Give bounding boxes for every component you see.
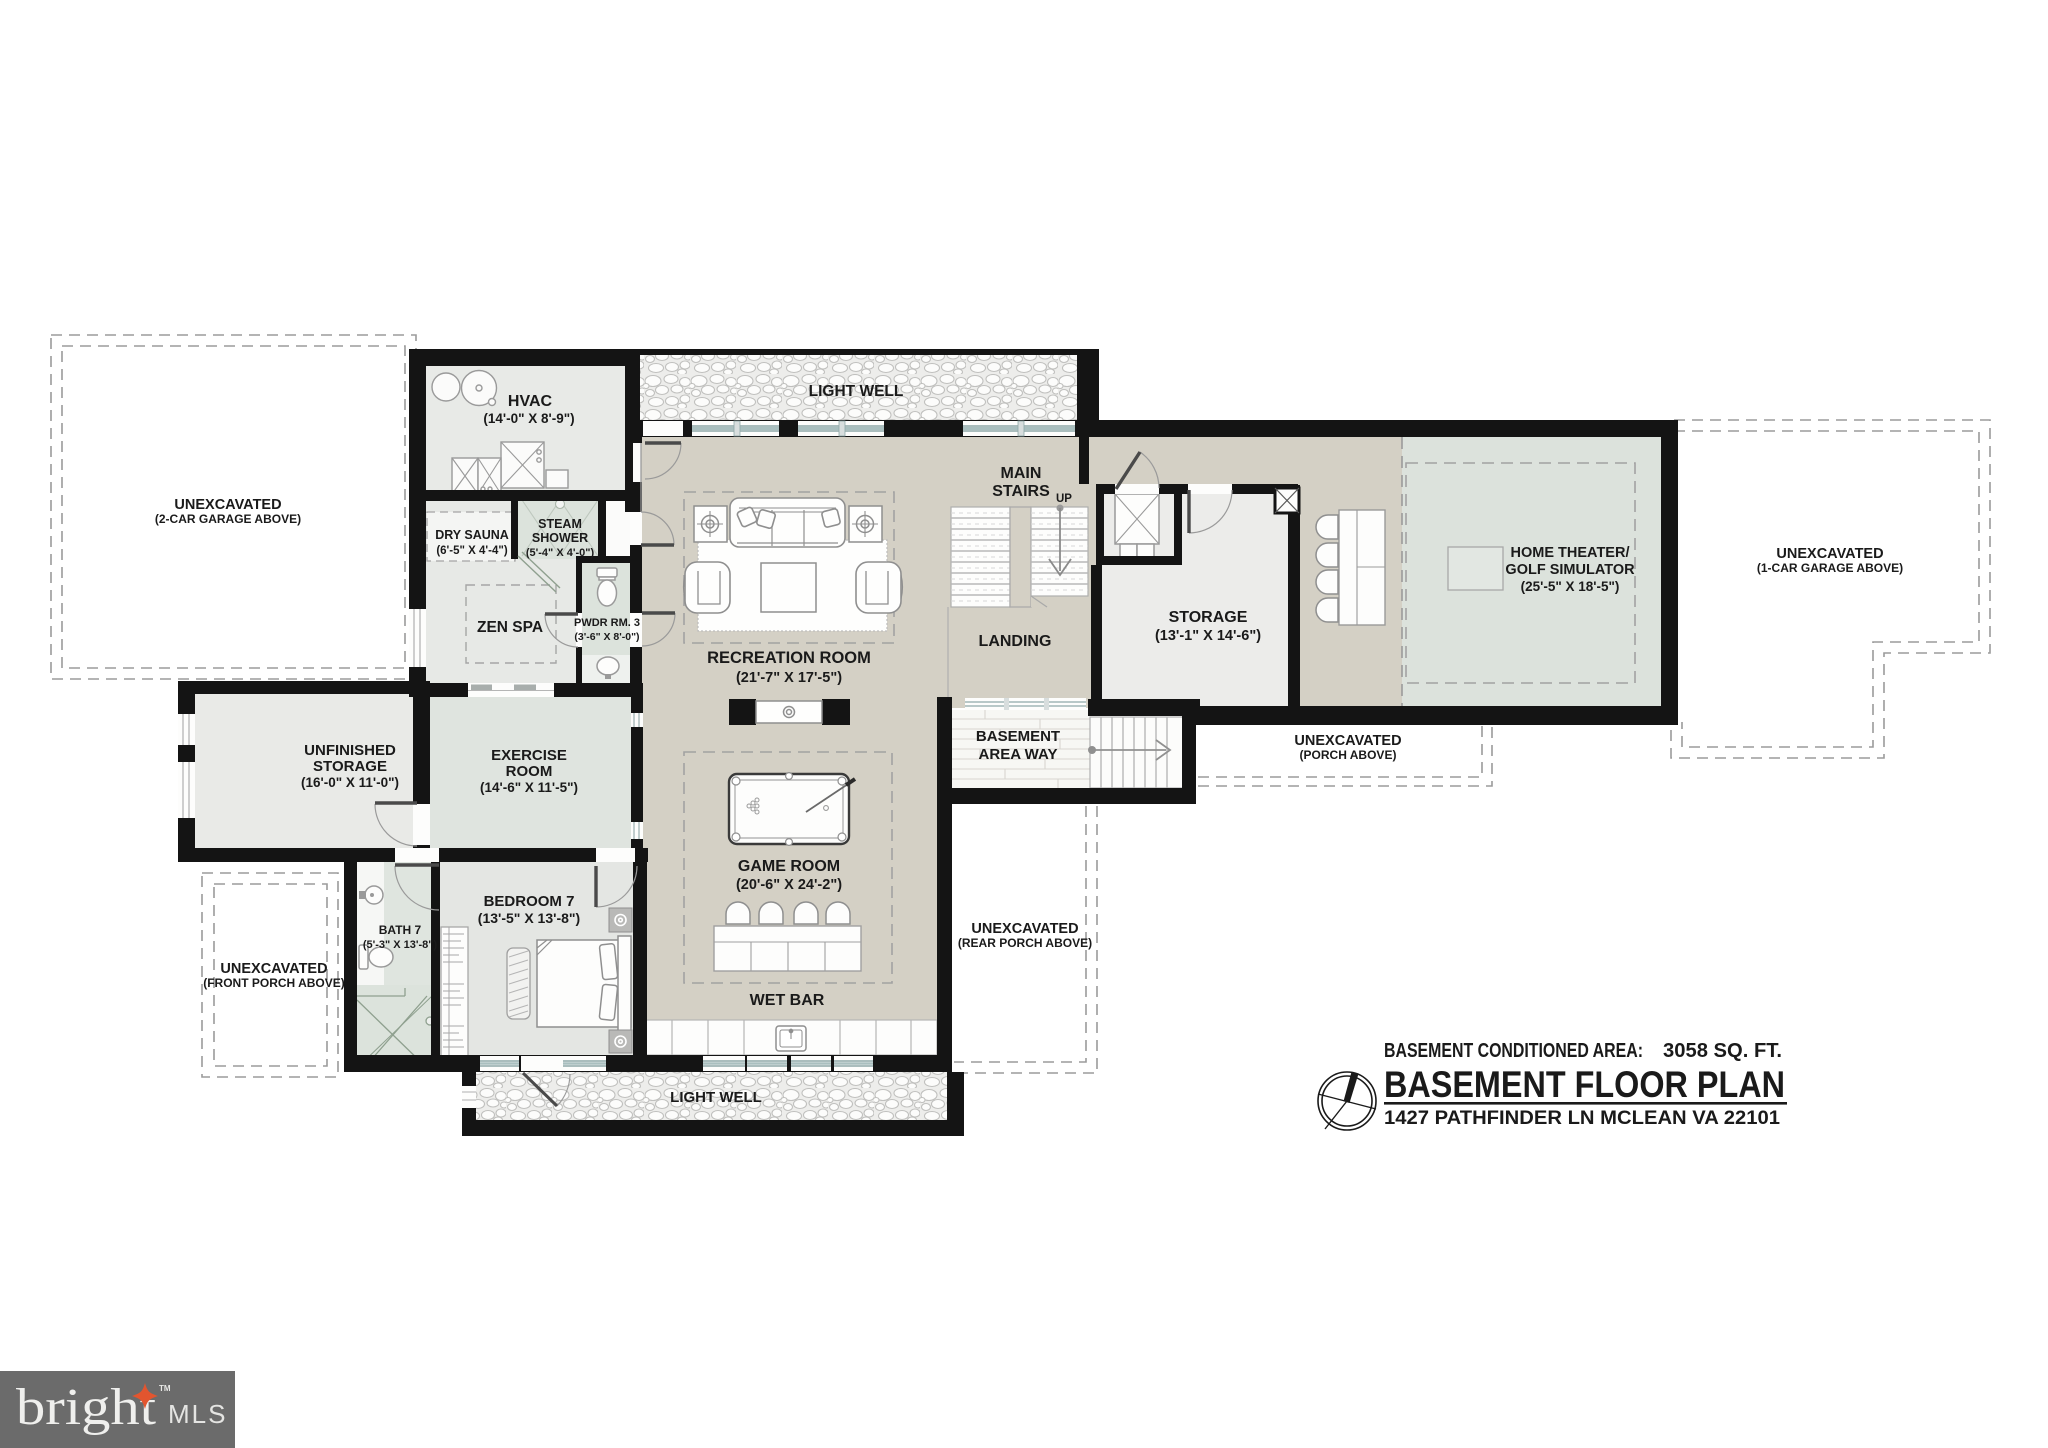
- svg-text:ZEN SPA: ZEN SPA: [477, 619, 543, 636]
- svg-text:UNEXCAVATED: UNEXCAVATED: [1776, 546, 1883, 562]
- svg-text:STEAM: STEAM: [538, 517, 582, 531]
- svg-text:(21'-7" X 17'-5"): (21'-7" X 17'-5"): [736, 670, 842, 686]
- svg-text:MLS: MLS: [168, 1399, 227, 1429]
- svg-text:SHOWER: SHOWER: [532, 531, 588, 545]
- svg-text:RECREATION ROOM: RECREATION ROOM: [707, 649, 871, 667]
- svg-text:(13'-1" X 14'-6"): (13'-1" X 14'-6"): [1155, 628, 1261, 644]
- svg-text:WET BAR: WET BAR: [750, 992, 825, 1009]
- svg-text:BASEMENT FLOOR PLAN: BASEMENT FLOOR PLAN: [1384, 1064, 1785, 1105]
- svg-text:STAIRS: STAIRS: [992, 483, 1050, 500]
- svg-text:bright: bright: [16, 1379, 157, 1436]
- svg-text:BATH 7: BATH 7: [379, 923, 422, 937]
- svg-text:TM: TM: [159, 1384, 171, 1393]
- svg-text:LIGHT WELL: LIGHT WELL: [809, 383, 904, 400]
- svg-text:(FRONT PORCH ABOVE): (FRONT PORCH ABOVE): [203, 976, 345, 990]
- svg-text:MAIN: MAIN: [1001, 465, 1042, 482]
- svg-text:(REAR PORCH ABOVE): (REAR PORCH ABOVE): [958, 936, 1092, 950]
- svg-text:HOME THEATER/: HOME THEATER/: [1511, 545, 1630, 561]
- svg-text:UP: UP: [1056, 493, 1072, 505]
- svg-text:(13'-5" X 13'-8"): (13'-5" X 13'-8"): [478, 910, 580, 926]
- svg-text:(5'-4" X 4'-0"): (5'-4" X 4'-0"): [526, 547, 595, 559]
- svg-text:UNEXCAVATED: UNEXCAVATED: [220, 961, 327, 977]
- svg-text:STORAGE: STORAGE: [313, 758, 387, 775]
- svg-text:EXERCISE: EXERCISE: [491, 747, 567, 764]
- svg-text:PWDR RM. 3: PWDR RM. 3: [574, 617, 640, 629]
- svg-text:LIGHT WELL: LIGHT WELL: [670, 1089, 762, 1106]
- svg-text:(14'-6" X 11'-5"): (14'-6" X 11'-5"): [480, 780, 578, 795]
- svg-text:(3'-6" X 8'-0"): (3'-6" X 8'-0"): [574, 631, 639, 643]
- svg-text:(20'-6" X 24'-2"): (20'-6" X 24'-2"): [736, 877, 842, 893]
- svg-text:HVAC: HVAC: [508, 393, 553, 410]
- svg-text:STORAGE: STORAGE: [1169, 609, 1248, 626]
- svg-text:BASEMENT CONDITIONED AREA:: BASEMENT CONDITIONED AREA:: [1384, 1039, 1643, 1062]
- svg-text:(1-CAR GARAGE ABOVE): (1-CAR GARAGE ABOVE): [1757, 561, 1903, 575]
- svg-text:ROOM: ROOM: [506, 763, 553, 780]
- svg-text:1427 PATHFINDER LN MCLEAN VA 2: 1427 PATHFINDER LN MCLEAN VA 22101: [1384, 1108, 1780, 1129]
- svg-text:UNEXCAVATED: UNEXCAVATED: [971, 921, 1078, 937]
- svg-text:(14'-0" X 8'-9"): (14'-0" X 8'-9"): [483, 411, 574, 426]
- svg-text:UNFINISHED: UNFINISHED: [304, 742, 396, 759]
- svg-text:(5'-3" X 13'-8"): (5'-3" X 13'-8"): [363, 939, 438, 951]
- svg-text:(16'-0" X 11'-0"): (16'-0" X 11'-0"): [301, 775, 399, 790]
- svg-text:BASEMENT: BASEMENT: [976, 728, 1060, 745]
- svg-text:(25'-5" X 18'-5"): (25'-5" X 18'-5"): [1521, 579, 1620, 594]
- svg-text:3058 SQ. FT.: 3058 SQ. FT.: [1663, 1039, 1782, 1062]
- svg-text:(2-CAR GARAGE ABOVE): (2-CAR GARAGE ABOVE): [155, 512, 301, 526]
- svg-text:GOLF SIMULATOR: GOLF SIMULATOR: [1505, 562, 1635, 578]
- svg-text:GAME ROOM: GAME ROOM: [738, 858, 840, 875]
- svg-text:UNEXCAVATED: UNEXCAVATED: [1294, 733, 1401, 749]
- svg-text:(6'-5" X 4'-4"): (6'-5" X 4'-4"): [436, 545, 508, 557]
- svg-text:(PORCH ABOVE): (PORCH ABOVE): [1300, 748, 1397, 762]
- svg-text:BEDROOM 7: BEDROOM 7: [484, 893, 575, 910]
- svg-text:AREA WAY: AREA WAY: [979, 746, 1058, 763]
- svg-text:LANDING: LANDING: [979, 633, 1052, 650]
- svg-text:DRY SAUNA: DRY SAUNA: [435, 528, 509, 542]
- svg-text:UNEXCAVATED: UNEXCAVATED: [174, 497, 281, 513]
